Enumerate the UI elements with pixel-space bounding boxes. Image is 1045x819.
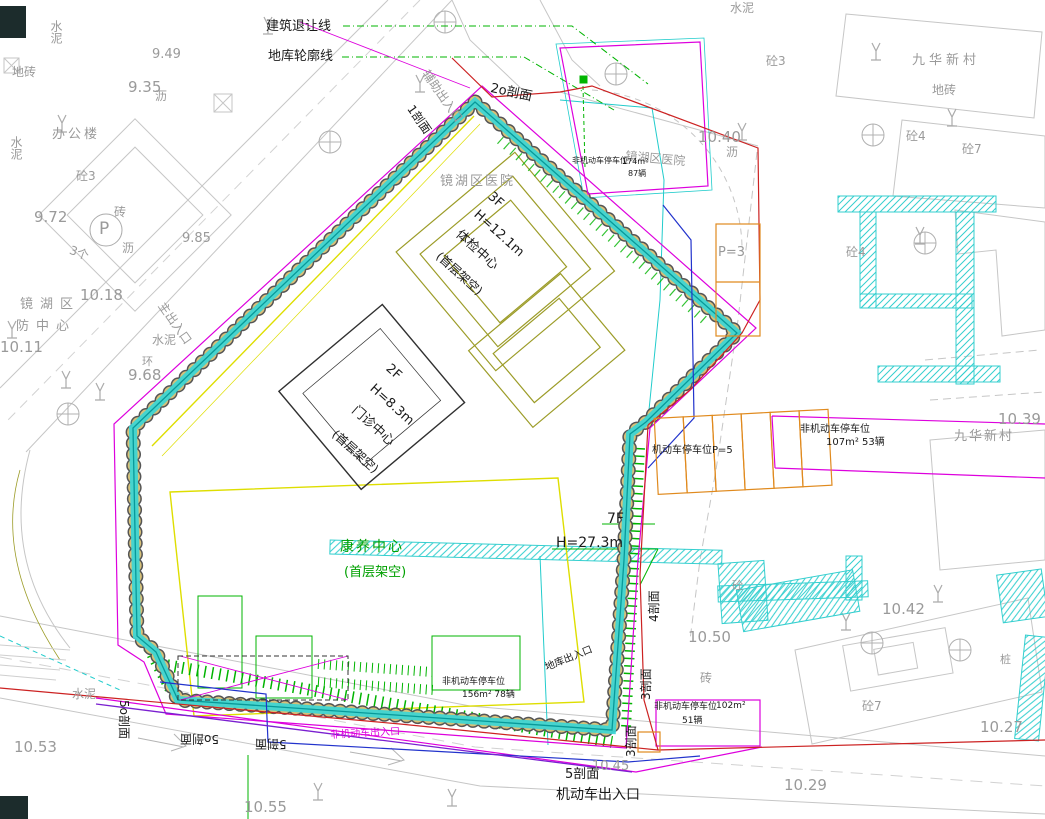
spot-elevation: 10.53: [14, 740, 57, 755]
parking-value: 51辆: [682, 717, 702, 726]
material-label: 沥: [726, 146, 738, 158]
material-label: 砖: [114, 206, 126, 218]
site-plan-canvas: 建筑退让线地库轮廓线辅助出入口1剖面2o剖面镜湖区医院镜湖区医院3FH=12.1…: [0, 0, 1045, 819]
section-3-label: 3剖面: [625, 725, 637, 757]
parking-value: 156m² 78辆: [462, 691, 515, 700]
material-label: 桩: [1000, 654, 1011, 665]
office-building-label: 办公楼: [52, 128, 100, 141]
section-4-label: 4剖面: [648, 590, 660, 622]
spot-elevation: 9.72: [34, 210, 67, 225]
building-setback-line-label: 建筑退让线: [266, 20, 331, 33]
spot-elevation: 10.45: [592, 760, 629, 773]
parking-value: 174m²: [622, 158, 648, 166]
spot-elevation: 10.11: [0, 340, 43, 355]
village-label: 九华新村: [954, 430, 1014, 443]
material-label: 砼7: [862, 700, 882, 712]
parking-value: 87辆: [628, 170, 646, 178]
section-3-label: 3剖面: [640, 668, 652, 700]
district-label: 防中心: [16, 320, 76, 333]
material-label: 水泥: [72, 688, 96, 700]
building3-note: (首层架空): [344, 566, 406, 579]
parking-stalls: [638, 224, 832, 752]
parking-label: 机动车停车位P=5: [652, 446, 733, 456]
section-5o-label: 5o剖面: [180, 733, 219, 745]
material-label: 环: [142, 356, 153, 367]
parking-value: 102m²: [716, 702, 746, 711]
material-label: 水泥: [152, 334, 176, 346]
material-label: 地砖: [932, 84, 956, 96]
parking-label: 非机动车停车位: [442, 678, 505, 687]
building3-name: 康养中心: [340, 540, 404, 554]
spot-elevation: 10.50: [688, 630, 731, 645]
spot-elevation: 10.40: [698, 130, 741, 145]
spot-elevation: 10.27: [980, 720, 1023, 735]
material-label: 沥: [122, 242, 134, 254]
spot-elevation: 10.39: [998, 412, 1041, 427]
parking-label: 非机动车停车位: [800, 425, 870, 435]
building3-height: H=27.3m: [556, 536, 623, 550]
spot-elevation: 10.55: [244, 800, 287, 815]
material-label: 水泥: [730, 2, 754, 14]
spot-elevation: 10.18: [80, 288, 123, 303]
section-5o-label: 5o剖面: [118, 700, 130, 739]
district-label: 镜湖区: [20, 298, 80, 311]
building3-floors: 7F: [607, 512, 624, 526]
material-label: 砼7: [962, 143, 982, 155]
village-label: 九华新村: [912, 54, 980, 67]
parking-label: 非机动车停车位: [654, 703, 717, 712]
material-label: 砼3: [766, 55, 786, 67]
parking-count-label: P=3: [718, 246, 745, 259]
section-5-label: 5剖面: [255, 738, 287, 750]
spot-elevation: 10.29: [784, 778, 827, 793]
material-label: 水泥: [10, 136, 22, 160]
vehicle-entrance-label: 机动车出入口: [556, 788, 640, 802]
material-label: 水泥: [50, 20, 62, 44]
material-label: 砼4: [846, 246, 866, 258]
hospital-label: 镜湖区医院: [440, 175, 515, 188]
parking-label: 非机动车停车位: [572, 157, 628, 165]
material-label: 砖: [700, 672, 712, 684]
spot-elevation: 9.85: [182, 232, 211, 245]
material-label: 砼3: [76, 170, 96, 182]
material-label: 沥: [155, 90, 167, 102]
spot-elevation: 9.68: [128, 368, 161, 383]
spot-elevation: 9.49: [152, 48, 181, 61]
parking-value: 107m² 53辆: [826, 438, 885, 448]
material-label: 地砖: [12, 66, 36, 78]
utility-lines-cyan: [0, 38, 712, 745]
spot-elevation: 10.42: [882, 602, 925, 617]
utility-corridor-hatch: [330, 196, 1045, 741]
site-plan-linework: [0, 0, 1045, 819]
parking-p-label: P: [99, 221, 109, 238]
basement-outline-label: 地库轮廓线: [268, 50, 333, 63]
material-label: 砼: [732, 580, 743, 591]
material-label: 砼4: [906, 130, 926, 142]
